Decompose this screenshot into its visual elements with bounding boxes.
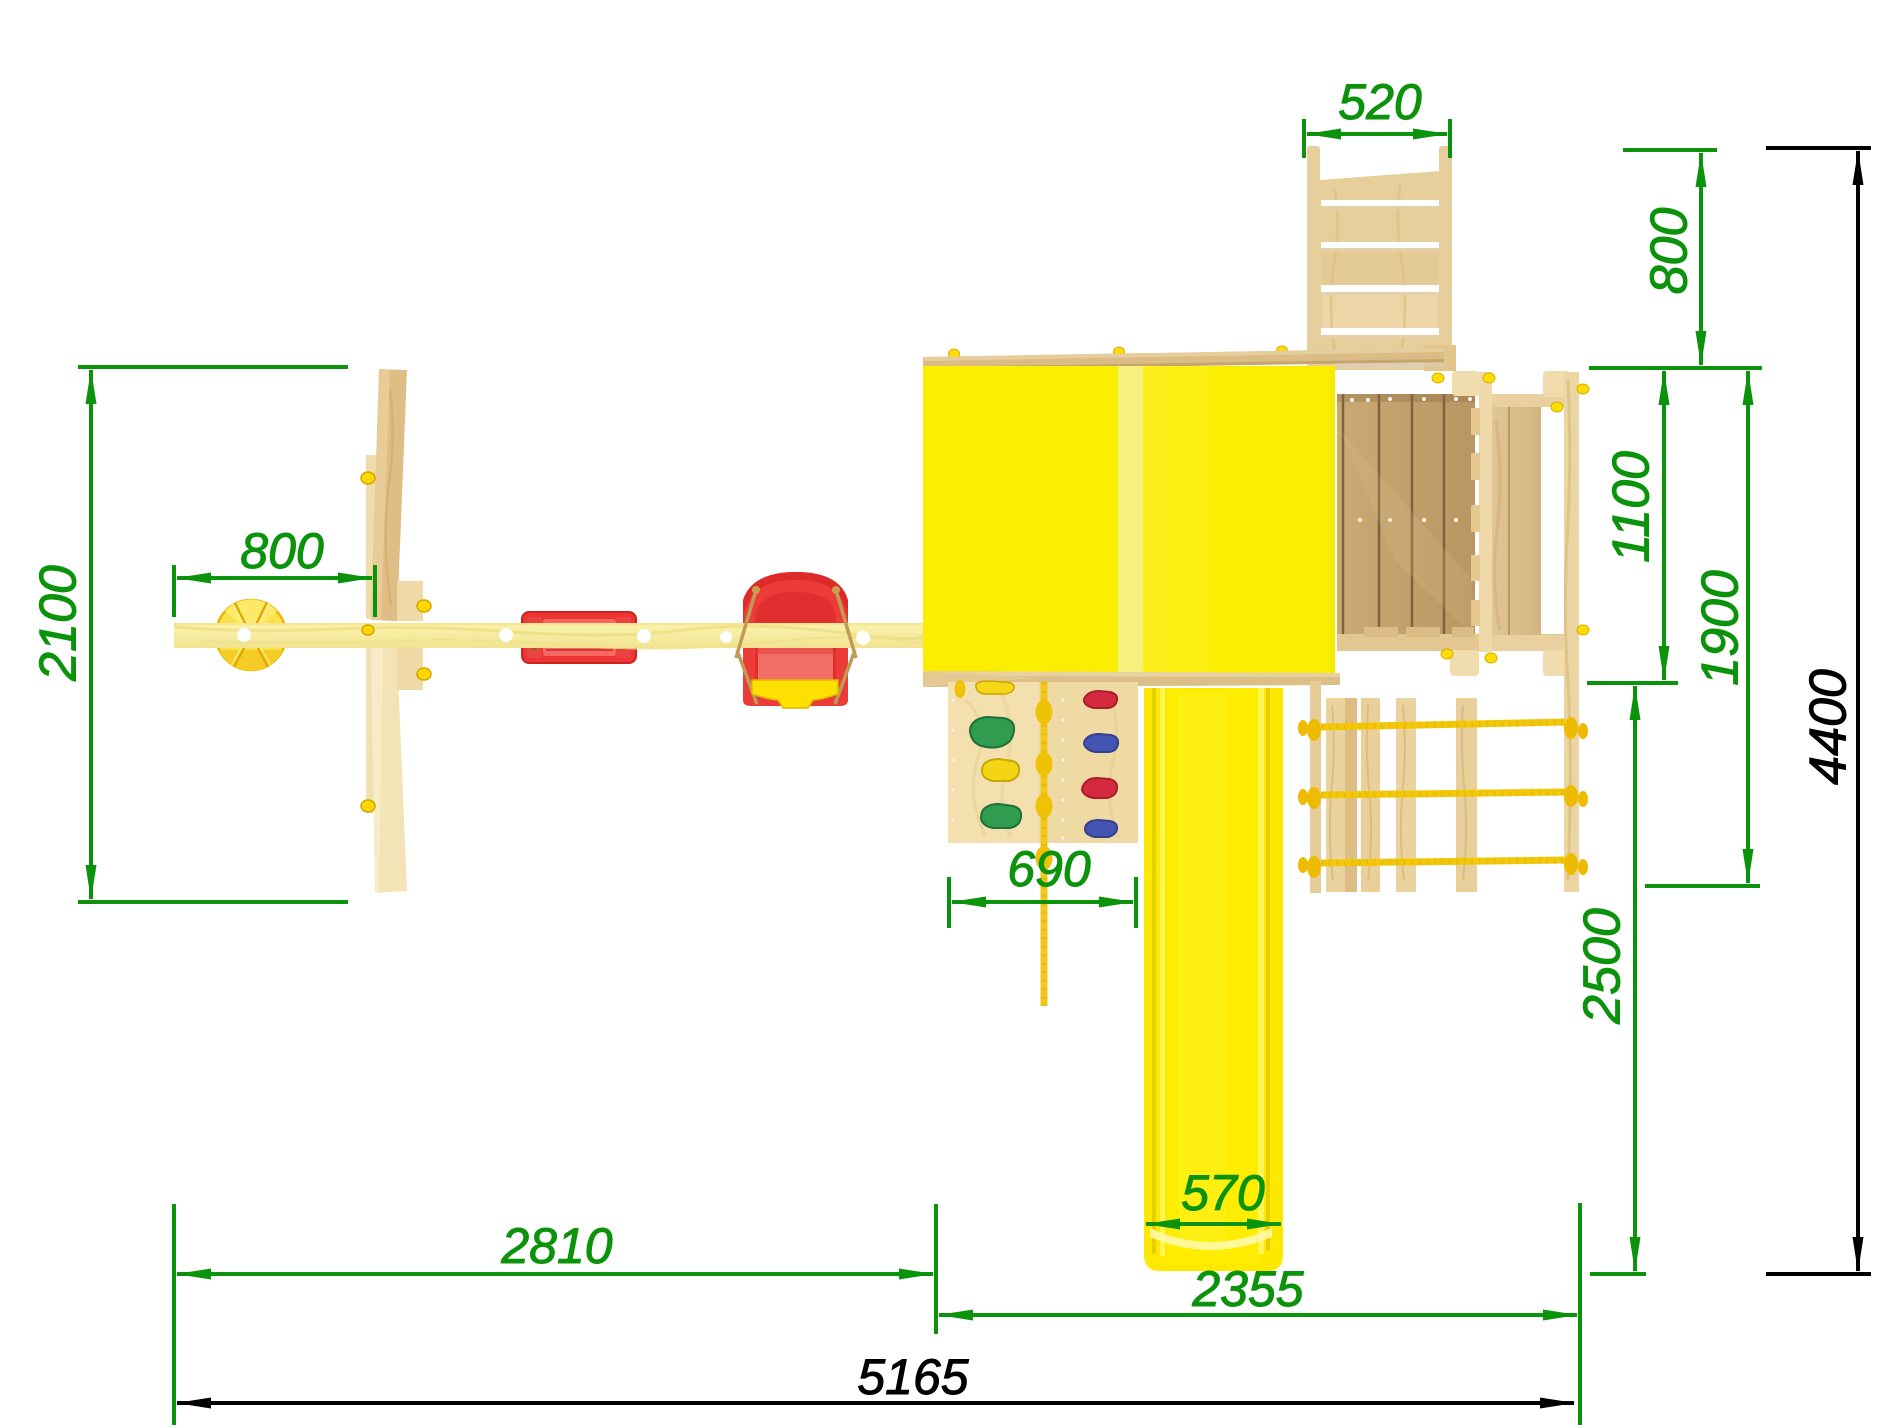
svg-text:690: 690 [1007, 841, 1091, 897]
svg-text:2810: 2810 [500, 1218, 612, 1274]
svg-text:1100: 1100 [1603, 451, 1661, 563]
svg-text:2355: 2355 [1191, 1261, 1303, 1317]
svg-text:520: 520 [1338, 74, 1422, 130]
svg-text:4400: 4400 [1800, 669, 1858, 785]
svg-text:570: 570 [1181, 1165, 1265, 1221]
svg-text:2100: 2100 [30, 565, 88, 682]
svg-text:5165: 5165 [857, 1349, 968, 1405]
svg-text:800: 800 [1641, 208, 1699, 295]
svg-text:800: 800 [240, 523, 324, 579]
svg-text:1900: 1900 [1692, 570, 1750, 686]
svg-text:2500: 2500 [1574, 908, 1632, 1025]
